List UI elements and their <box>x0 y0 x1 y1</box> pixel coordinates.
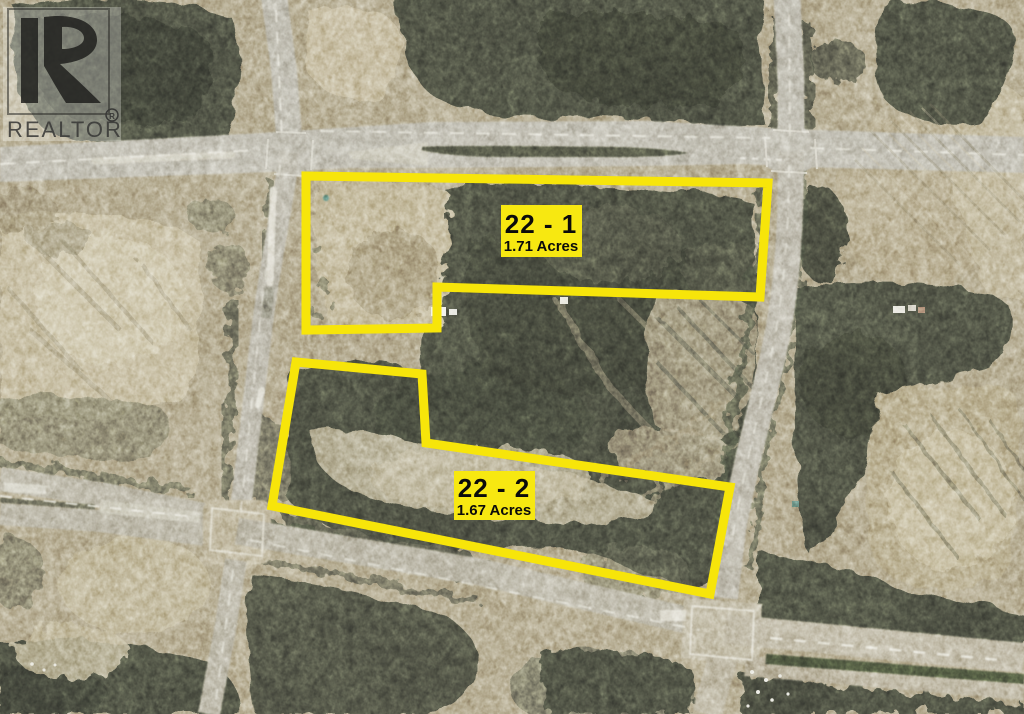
svg-text:1.71 Acres: 1.71 Acres <box>504 238 579 255</box>
svg-text:22 - 1: 22 - 1 <box>505 209 578 239</box>
svg-text:REALTOR: REALTOR <box>7 117 123 142</box>
svg-text:22 - 2: 22 - 2 <box>458 473 531 503</box>
svg-text:1.67 Acres: 1.67 Acres <box>457 502 532 519</box>
svg-text:R: R <box>109 112 115 121</box>
